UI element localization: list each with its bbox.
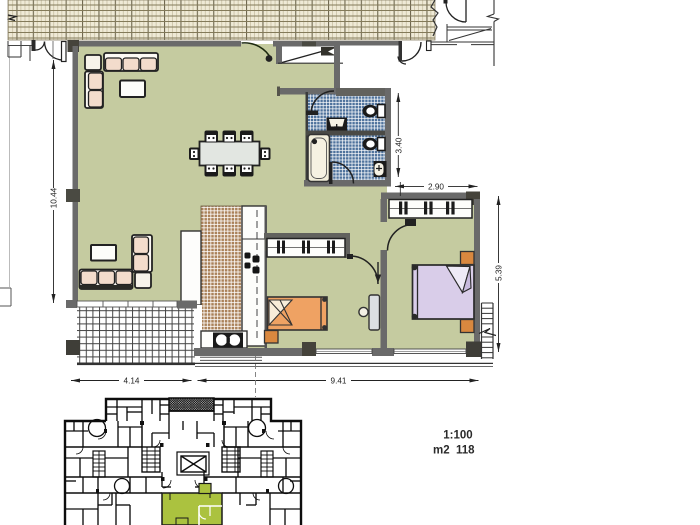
svg-text:m2 118: m2 118 [433,445,475,457]
svg-text:1:100: 1:100 [443,430,472,442]
svg-text:10.44: 10.44 [50,187,59,208]
svg-text:2.90: 2.90 [428,182,444,191]
svg-text:5.39: 5.39 [495,265,504,281]
svg-text:4.14: 4.14 [124,377,140,386]
svg-text:9.41: 9.41 [331,377,347,386]
svg-text:3.40: 3.40 [394,137,403,153]
